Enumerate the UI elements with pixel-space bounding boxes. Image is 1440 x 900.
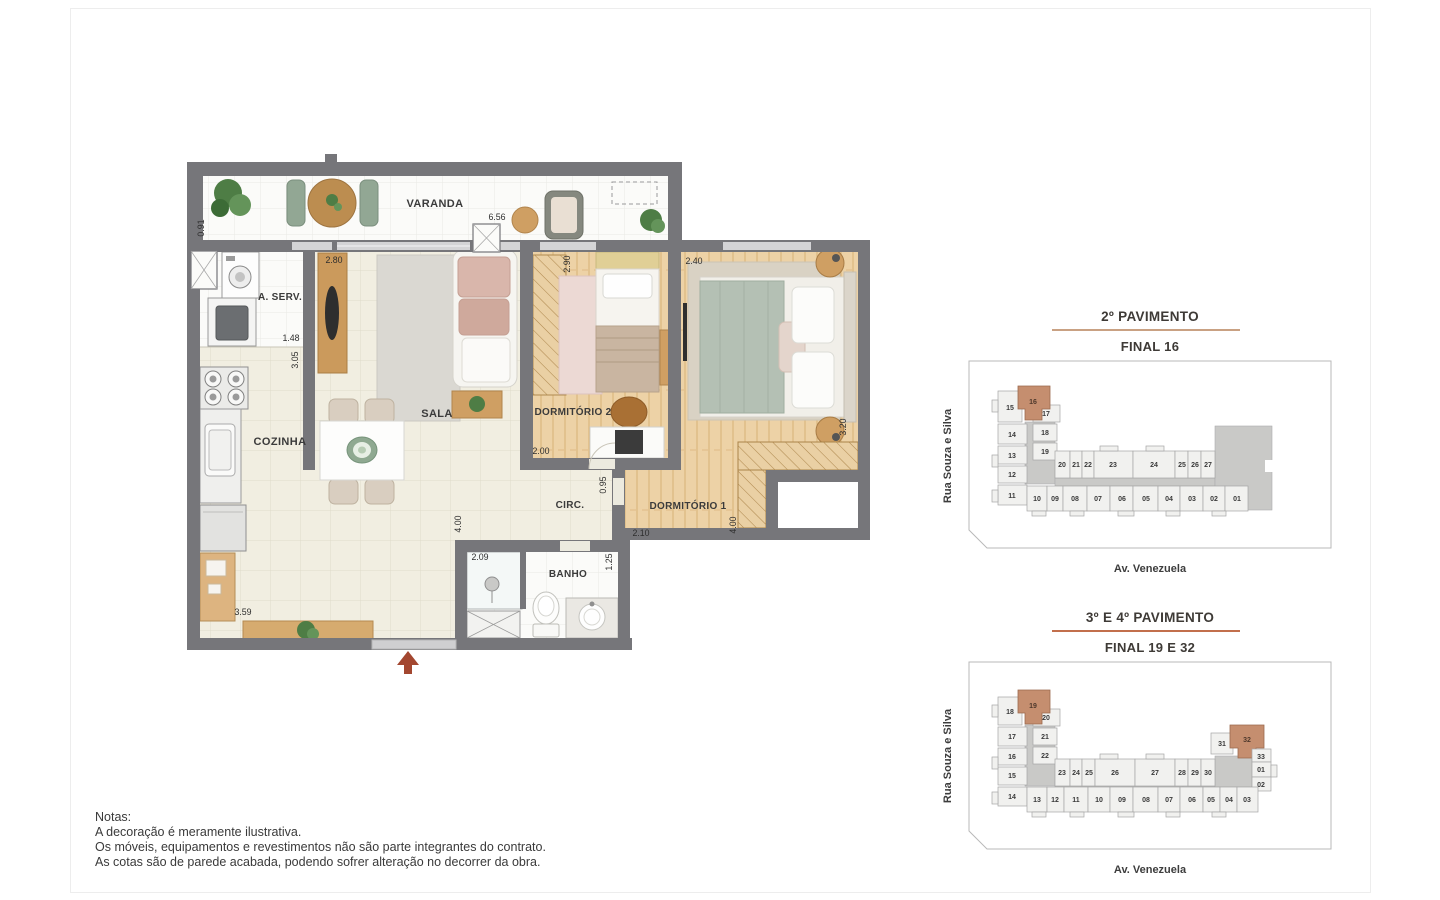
dim-banho-width: 2.09	[471, 552, 488, 562]
svg-text:08: 08	[1071, 496, 1079, 503]
notes-heading: Notas:	[95, 810, 546, 825]
svg-text:30: 30	[1204, 770, 1212, 777]
room-label-aserv: A. SERV.	[258, 292, 302, 303]
side-table	[512, 207, 538, 233]
dim-dorm1-left: 2.10	[632, 528, 649, 538]
svg-text:15: 15	[1006, 405, 1014, 412]
dim-dorm2-width: 2.90	[562, 255, 572, 272]
rug	[377, 255, 460, 421]
nightstand	[816, 249, 844, 277]
window	[540, 242, 596, 250]
dining-chair	[365, 399, 394, 424]
svg-text:18: 18	[1006, 709, 1014, 716]
svg-text:14: 14	[1008, 794, 1016, 801]
svg-text:24: 24	[1072, 770, 1080, 777]
svg-text:14: 14	[1008, 432, 1016, 439]
notes-line: As cotas são de parede acabada, podendo …	[95, 855, 546, 870]
svg-text:07: 07	[1094, 496, 1102, 503]
dining-chair	[365, 479, 394, 504]
floorplan-sheet: VARANDA SALA COZINHA A. SERV. DORMITÓRIO…	[0, 0, 1440, 900]
notes-line: Os móveis, equipamentos e revestimentos …	[95, 840, 546, 855]
desk-chair	[611, 397, 647, 427]
laptop	[615, 430, 643, 454]
svg-text:26: 26	[1191, 462, 1199, 469]
svg-text:05: 05	[1207, 797, 1215, 804]
closet	[738, 470, 766, 528]
svg-text:20: 20	[1042, 715, 1050, 722]
svg-text:19: 19	[1041, 449, 1049, 456]
floor-plan: VARANDA SALA COZINHA A. SERV. DORMITÓRIO…	[150, 140, 890, 685]
keyplan2-subtitle: FINAL 19 E 32	[968, 640, 1332, 655]
dim-dorm2-bottom: 2.00	[532, 446, 549, 456]
washbasin	[579, 604, 605, 630]
room-label-sala: SALA	[421, 408, 453, 420]
unit-number-32: 32	[1243, 737, 1251, 744]
keyplan1: 15 14 13 12 11 16 17 18 19 20 21 22 23 2…	[968, 360, 1332, 550]
svg-text:02: 02	[1210, 496, 1218, 503]
unit-number-19: 19	[1029, 703, 1037, 710]
closet	[738, 442, 858, 470]
door-opening	[560, 541, 590, 551]
keyplan2-street-left: Rua Souza e Silva	[942, 696, 956, 816]
balcony-chair	[287, 180, 305, 226]
dim-dorm1-depth: 3.20	[838, 418, 848, 435]
room-label-banho: BANHO	[549, 569, 587, 580]
svg-text:02: 02	[1257, 782, 1265, 789]
svg-text:01: 01	[1257, 767, 1265, 774]
dim-sala-depth: 4.00	[453, 515, 463, 532]
svg-text:06: 06	[1188, 797, 1196, 804]
void	[778, 482, 858, 528]
svg-text:21: 21	[1041, 734, 1049, 741]
svg-text:11: 11	[1072, 797, 1080, 804]
svg-text:20: 20	[1058, 462, 1066, 469]
room-label-varanda: VARANDA	[407, 198, 464, 210]
svg-text:18: 18	[1041, 430, 1049, 437]
door-opening	[589, 459, 615, 469]
dim-varanda-width: 6.56	[488, 212, 505, 222]
dim-dorm1-width: 2.40	[685, 256, 702, 266]
dim-varanda-depth: 0.91	[196, 219, 206, 236]
entrance-door	[372, 640, 456, 649]
svg-text:09: 09	[1118, 797, 1126, 804]
svg-text:13: 13	[1033, 797, 1041, 804]
room-label-cozinha: COZINHA	[254, 436, 307, 448]
dim-sala-width: 2.80	[325, 255, 342, 265]
dim-dorm1-bottom: 4.00	[728, 516, 738, 533]
svg-text:04: 04	[1165, 496, 1173, 503]
svg-text:05: 05	[1142, 496, 1150, 503]
keyplan1-subtitle: FINAL 16	[968, 339, 1332, 354]
bathroom	[467, 552, 618, 638]
svg-text:04: 04	[1225, 797, 1233, 804]
plant-icon	[469, 396, 485, 412]
svg-text:22: 22	[1084, 462, 1092, 469]
shower-drain-icon	[485, 577, 499, 591]
svg-text:13: 13	[1008, 453, 1016, 460]
svg-text:01: 01	[1233, 496, 1241, 503]
tv	[325, 286, 339, 340]
svg-text:12: 12	[1051, 797, 1059, 804]
dim-banho-depth: 1.25	[604, 553, 614, 570]
svg-text:10: 10	[1095, 797, 1103, 804]
keyplan2-street-bottom: Av. Venezuela	[968, 864, 1332, 876]
svg-text:07: 07	[1165, 797, 1173, 804]
keyplan1-title: 2º PAVIMENTO	[968, 309, 1332, 324]
svg-text:23: 23	[1058, 770, 1066, 777]
window	[292, 242, 332, 250]
dim-cozinha-width: 3.59	[234, 607, 251, 617]
svg-text:23: 23	[1109, 462, 1117, 469]
dim-aserv-width: 1.48	[282, 333, 299, 343]
window	[723, 242, 811, 250]
bed-headboard	[596, 252, 659, 269]
dining-chair	[329, 399, 358, 424]
unit-number-16: 16	[1029, 399, 1037, 406]
keyplan2-underline	[1052, 630, 1240, 632]
dim-cozinha-depth: 3.05	[290, 351, 300, 368]
toilet	[533, 624, 559, 637]
svg-text:31: 31	[1218, 741, 1226, 748]
window	[500, 242, 520, 250]
room-label-dorm1: DORMITÓRIO 1	[650, 499, 727, 512]
keyplan1-underline	[1052, 329, 1240, 331]
svg-text:25: 25	[1178, 462, 1186, 469]
keyplan1-street-bottom: Av. Venezuela	[968, 563, 1332, 575]
balcony-chair	[360, 180, 378, 226]
svg-text:16: 16	[1008, 754, 1016, 761]
svg-text:12: 12	[1008, 472, 1016, 479]
keyplan2-title: 3º E 4º PAVIMENTO	[968, 610, 1332, 625]
svg-text:15: 15	[1008, 773, 1016, 780]
svg-text:11: 11	[1008, 493, 1016, 500]
svg-text:27: 27	[1204, 462, 1212, 469]
svg-text:22: 22	[1041, 753, 1049, 760]
notes-line: A decoração é meramente ilustrativa.	[95, 825, 546, 840]
svg-text:03: 03	[1243, 797, 1251, 804]
svg-text:25: 25	[1085, 770, 1093, 777]
entrance-arrow	[397, 651, 419, 674]
dining-chair	[329, 479, 358, 504]
svg-text:28: 28	[1178, 770, 1186, 777]
svg-text:06: 06	[1118, 496, 1126, 503]
svg-text:24: 24	[1150, 462, 1158, 469]
svg-text:26: 26	[1111, 770, 1119, 777]
svg-text:17: 17	[1042, 411, 1050, 418]
svg-text:17: 17	[1008, 734, 1016, 741]
notes: Notas: A decoração é meramente ilustrati…	[95, 810, 546, 870]
keyplan2: 18 17 16 15 14 19 20 21 22 23 24 25 26 2…	[968, 661, 1332, 851]
svg-text:33: 33	[1257, 754, 1265, 761]
svg-text:27: 27	[1151, 770, 1159, 777]
room-label-dorm2: DORMITÓRIO 2	[535, 405, 612, 418]
dim-circ-width: 0.95	[598, 476, 608, 493]
svg-text:03: 03	[1188, 496, 1196, 503]
svg-text:10: 10	[1033, 496, 1041, 503]
room-label-circ: CIRC.	[556, 500, 585, 511]
svg-text:09: 09	[1051, 496, 1059, 503]
tv	[683, 303, 687, 361]
keyplan1-street-left: Rua Souza e Silva	[942, 396, 956, 516]
door-opening	[613, 478, 624, 505]
svg-text:29: 29	[1191, 770, 1199, 777]
bed-headboard	[844, 272, 856, 422]
svg-text:21: 21	[1072, 462, 1080, 469]
svg-text:08: 08	[1142, 797, 1150, 804]
